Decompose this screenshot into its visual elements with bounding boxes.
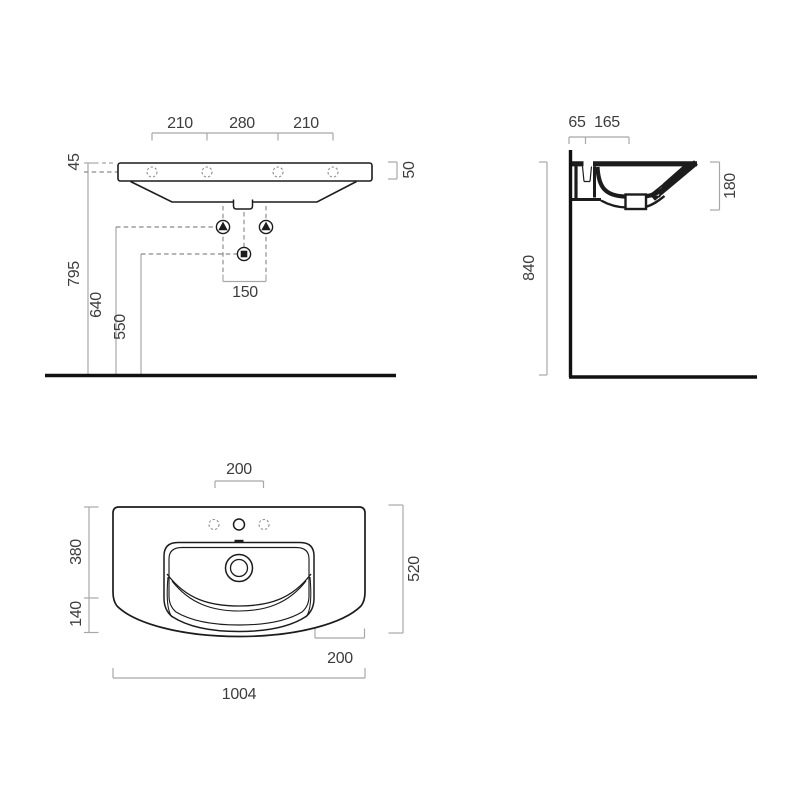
front-basin-rim bbox=[118, 163, 372, 181]
front-bowl-underside bbox=[131, 182, 357, 203]
technical-drawing-canvas bbox=[0, 0, 800, 800]
dim-plan-380: 380 bbox=[69, 539, 85, 565]
front-drain-fitting bbox=[234, 200, 253, 210]
front-left-dim-lines bbox=[84, 163, 141, 375]
dim-plan-200-bottom: 200 bbox=[327, 651, 353, 667]
dim-plan-200-top: 200 bbox=[226, 462, 252, 478]
dim-front-550: 550 bbox=[113, 314, 129, 340]
dim-front-tap-left: 210 bbox=[167, 116, 193, 132]
front-view-drawing bbox=[45, 133, 397, 376]
dim-front-795: 795 bbox=[67, 261, 83, 287]
dim-side-65: 65 bbox=[568, 115, 585, 131]
side-basin-section bbox=[570, 161, 697, 209]
dim-side-840: 840 bbox=[522, 255, 538, 281]
side-top-dim-bracket bbox=[569, 137, 629, 144]
dim-front-640: 640 bbox=[89, 292, 105, 318]
front-tap-dim-bracket bbox=[152, 133, 333, 141]
dim-plan-520: 520 bbox=[407, 556, 423, 582]
dim-side-165: 165 bbox=[594, 115, 620, 131]
waste-outlet-symbol bbox=[237, 247, 250, 260]
plan-outer-outline bbox=[113, 507, 365, 637]
front-50-dim-bracket bbox=[388, 162, 397, 179]
plan-overflow-slot bbox=[235, 540, 244, 543]
drawing-sheet: 210 280 210 45 50 795 640 550 150 65 165… bbox=[0, 0, 800, 800]
dim-side-180: 180 bbox=[723, 173, 739, 199]
dim-front-50: 50 bbox=[402, 161, 418, 178]
dim-front-45: 45 bbox=[67, 153, 83, 170]
plan-view-drawing bbox=[84, 481, 403, 678]
dim-front-tap-center: 280 bbox=[229, 116, 255, 132]
dim-front-150: 150 bbox=[232, 285, 258, 301]
front-fixing-dim-bracket bbox=[223, 275, 266, 282]
fixing-point-symbol-left bbox=[216, 220, 229, 233]
dim-front-tap-right: 210 bbox=[293, 116, 319, 132]
dim-plan-140: 140 bbox=[69, 601, 85, 627]
side-180-dim-bracket bbox=[710, 162, 720, 210]
dim-plan-1004: 1004 bbox=[222, 687, 256, 703]
fixing-point-symbol-right bbox=[259, 220, 272, 233]
side-840-dim bbox=[539, 162, 547, 375]
